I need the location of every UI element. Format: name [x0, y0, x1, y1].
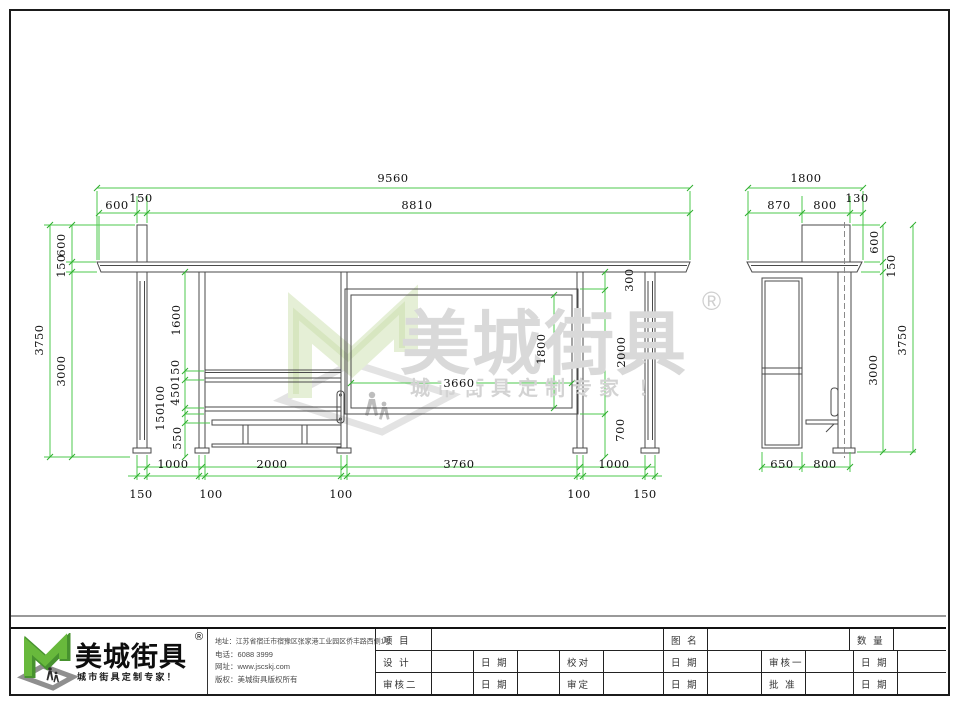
- dim-span-1: 1000: [157, 457, 188, 471]
- dim-colw-5: 150: [633, 487, 656, 501]
- dim-side-bottom-a: 650: [770, 457, 793, 471]
- dim-span-4: 1000: [598, 457, 629, 471]
- company-address: 地址：江苏省宿迁市宿豫区张家港工业园区侨丰路西侧1号: [215, 636, 362, 648]
- drawing-info-table: 项 目 图 名 数 量 设 计 日 期 校对 日 期 审核一 日 期: [375, 629, 946, 694]
- dim-colw-2: 100: [199, 487, 222, 501]
- field-date4-value: [518, 673, 560, 694]
- field-date-label: 日 期: [474, 651, 518, 672]
- dim-front-in-d: 100: [153, 385, 167, 408]
- dim-side-bottom-b: 800: [813, 457, 836, 471]
- field-date2-value: [708, 651, 762, 672]
- field-quantity-label: 数 量: [850, 629, 894, 650]
- field-sanction-label: 批 准: [762, 673, 806, 694]
- dim-front-in-f: 550: [170, 426, 184, 449]
- table-row: 设 计 日 期 校对 日 期 审核一 日 期: [376, 651, 946, 673]
- dim-span-2: 2000: [256, 457, 287, 471]
- dim-front-overall-h: 3750: [32, 324, 46, 355]
- dim-front-post: 150: [129, 191, 152, 205]
- company-phone: 电话：6088 3999: [215, 649, 375, 662]
- dim-side-above: 600: [867, 230, 881, 253]
- field-date6-value: [898, 673, 946, 694]
- field-approve-value: [604, 673, 664, 694]
- dim-front-total: 9560: [377, 171, 408, 185]
- field-date6-label: 日 期: [854, 673, 898, 694]
- dim-front-inner: 8810: [401, 198, 432, 212]
- dim-front-lower: 700: [613, 418, 627, 441]
- dim-side-overall: 3750: [895, 324, 909, 355]
- field-date5-value: [708, 673, 762, 694]
- field-design-label: 设 计: [376, 651, 432, 672]
- table-row: 项 目 图 名 数 量: [376, 629, 946, 651]
- title-block: 美城街具 ® 城市街具定制专家！ 地址：江苏省宿迁市宿豫区张家港工业园区侨丰路西…: [11, 627, 946, 694]
- dim-colw-1: 150: [129, 487, 152, 501]
- dim-front-roof-th: 150: [54, 254, 68, 277]
- logo-brand-text: 美城街具: [75, 635, 187, 674]
- dim-side-a: 870: [767, 198, 790, 212]
- dim-side-roof: 150: [884, 254, 898, 277]
- field-date5-label: 日 期: [664, 673, 708, 694]
- dim-side-c: 130: [845, 191, 868, 205]
- field-sanction-value: [806, 673, 854, 694]
- field-date3-value: [898, 651, 946, 672]
- cad-sheet: 美城街具 ® 城市街具定制专家 ！ 9560 8810 600 150 3750…: [0, 0, 960, 704]
- field-drawingname-value: [708, 629, 850, 650]
- field-review1-value: [806, 651, 854, 672]
- field-proof-label: 校对: [560, 651, 604, 672]
- field-review2-label: 审核二: [376, 673, 432, 694]
- field-project-value: [432, 629, 664, 650]
- company-logo: 美城街具 ® 城市街具定制专家！: [11, 629, 207, 694]
- logo-tagline: 城市街具定制专家！: [77, 670, 178, 683]
- dim-panel-width: 3660: [441, 376, 476, 390]
- dim-front-belowroof: 3000: [54, 355, 68, 386]
- dim-side-b: 800: [813, 198, 836, 212]
- dim-colw-4: 100: [567, 487, 590, 501]
- field-proof-value: [604, 651, 664, 672]
- side-handle: [831, 388, 838, 416]
- field-review2-value: [432, 673, 474, 694]
- company-logo-icon: [17, 633, 79, 691]
- dim-front-panelzone: 2000: [614, 336, 628, 367]
- field-quantity-value: [894, 629, 946, 650]
- field-approve-label: 审定: [560, 673, 604, 694]
- dim-front-aboveroof: 600: [54, 233, 68, 256]
- field-drawingname-label: 图 名: [664, 629, 708, 650]
- field-review1-label: 审核一: [762, 651, 806, 672]
- dim-side-below: 3000: [866, 354, 880, 385]
- dim-front-offset: 600: [105, 198, 128, 212]
- logo-registered-icon: ®: [195, 631, 203, 643]
- side-elevation: [747, 222, 862, 458]
- dim-colw-3: 100: [329, 487, 352, 501]
- company-website: 网址：www.jscskj.com: [215, 661, 375, 674]
- field-date4-label: 日 期: [474, 673, 518, 694]
- field-date3-label: 日 期: [854, 651, 898, 672]
- dim-front-in-e: 150: [153, 407, 167, 430]
- field-date-value: [518, 651, 560, 672]
- company-info: 地址：江苏省宿迁市宿豫区张家港工业园区侨丰路西侧1号 电话：6088 3999 …: [207, 629, 375, 694]
- dim-span-3: 3760: [443, 457, 474, 471]
- field-date2-label: 日 期: [664, 651, 708, 672]
- field-design-value: [432, 651, 474, 672]
- shelter-elevation-drawing: [0, 0, 960, 704]
- dim-front-gap: 300: [622, 268, 636, 291]
- dim-front-in-c: 450: [168, 382, 182, 405]
- dim-panel-height: 1800: [534, 333, 548, 364]
- company-copyright: 版权：美城街具版权所有: [215, 674, 375, 687]
- dim-front-in-b: 150: [168, 359, 182, 382]
- dim-side-total: 1800: [790, 171, 821, 185]
- dim-front-in-a: 1600: [169, 304, 183, 335]
- table-row: 审核二 日 期 审定 日 期 批 准 日 期: [376, 673, 946, 694]
